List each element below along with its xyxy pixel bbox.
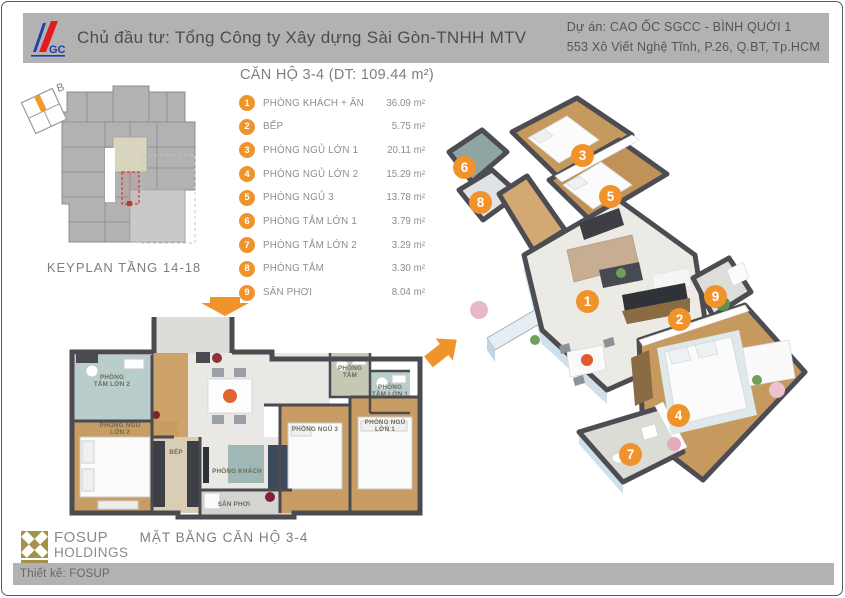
header-bar: GC Chủ đầu tư: Tổng Công ty Xây dựng Sài… bbox=[23, 13, 829, 63]
legend-number-badge: 2 bbox=[239, 119, 255, 135]
legend-room-area: 3.30 m² bbox=[392, 263, 425, 274]
room-label: PHÒNG TẮM bbox=[338, 365, 362, 379]
legend-number-badge: 1 bbox=[239, 95, 255, 111]
legend-room-area: 36.09 m² bbox=[386, 98, 425, 109]
marker-bathroom1: 6 bbox=[453, 156, 476, 179]
unit-title: CĂN HỘ 3-4 (DT: 109.44 m²) bbox=[230, 67, 444, 83]
legend-item: 3PHÒNG NGỦ LỚN 120.11 m² bbox=[239, 142, 425, 158]
fosup-holdings: HOLDINGS bbox=[54, 545, 129, 560]
legend-room-name: PHÒNG NGỦ 3 bbox=[263, 192, 386, 203]
room-label: PHÒNG TẮM LỚN 2 bbox=[94, 374, 130, 388]
marker-bedroom3: 5 bbox=[599, 185, 622, 208]
legend-room-name: BẾP bbox=[263, 121, 392, 132]
footer-bar: Thiết kế: FOSUP bbox=[13, 563, 834, 585]
legend-room-area: 5.75 m² bbox=[392, 121, 425, 132]
entrance-arrow-icon bbox=[201, 297, 249, 316]
keyplan-floor-diagram: B bbox=[17, 82, 227, 257]
marker-bathroom3: 8 bbox=[469, 191, 492, 214]
room-label: PHÒNG KHÁCH bbox=[212, 468, 262, 475]
room-label: PHÒNG TẮM LỚN 1 bbox=[372, 384, 408, 398]
legend-number-badge: 3 bbox=[239, 142, 255, 158]
legend-number-badge: 7 bbox=[239, 237, 255, 253]
fosup-logo-icon bbox=[20, 530, 50, 566]
north-label: B bbox=[55, 82, 66, 95]
room-label: PHÒNG NGỦ LỚN 1 bbox=[365, 419, 406, 433]
legend-item: 1PHÒNG KHÁCH + ĂN36.09 m² bbox=[239, 95, 425, 111]
legend-room-name: PHÒNG NGỦ LỚN 1 bbox=[263, 145, 387, 156]
legend-room-name: PHÒNG KHÁCH + ĂN bbox=[263, 98, 386, 109]
floorplan-2d-caption: MẶT BẰNG CĂN HỘ 3-4 bbox=[124, 530, 324, 545]
floorplan-2d: PHÒNG TẮM LỚN 2 PHÒNG NGỦ LỚN 2 BẾP PHÒN… bbox=[32, 295, 437, 533]
marker-kitchen: 2 bbox=[668, 308, 691, 331]
design-credit: Thiết kế: FOSUP bbox=[20, 568, 110, 580]
room-legend: 1PHÒNG KHÁCH + ĂN36.09 m² 2BẾP5.75 m² 3P… bbox=[239, 95, 425, 308]
legend-number-badge: 6 bbox=[239, 213, 255, 229]
room-label: PHÒNG NGỦ 3 bbox=[292, 426, 338, 433]
legend-room-area: 3.29 m² bbox=[392, 240, 425, 251]
legend-number-badge: 8 bbox=[239, 261, 255, 277]
legend-room-name: PHÒNG NGỦ LỚN 2 bbox=[263, 169, 386, 180]
brochure-page: GC Chủ đầu tư: Tổng Công ty Xây dựng Sài… bbox=[1, 1, 843, 596]
project-address: 553 Xô Viết Nghệ Tĩnh, P.26, Q.BT, Tp.HC… bbox=[567, 37, 820, 57]
marker-bathroom2: 7 bbox=[619, 443, 642, 466]
legend-number-badge: 5 bbox=[239, 190, 255, 206]
legend-item: 8PHÒNG TẮM3.30 m² bbox=[239, 261, 425, 277]
legend-room-name: PHÒNG TẮM bbox=[263, 263, 392, 274]
developer-text: Chủ đầu tư: Tổng Công ty Xây dựng Sài Gò… bbox=[77, 13, 526, 63]
legend-item: 6PHÒNG TẮM LỚN 13.79 m² bbox=[239, 213, 425, 229]
legend-item: 4PHÒNG NGỦ LỚN 215.29 m² bbox=[239, 166, 425, 182]
room-label: BẾP bbox=[169, 449, 183, 456]
legend-room-name: PHÒNG TẮM LỚN 2 bbox=[263, 240, 392, 251]
legend-item: 5PHÒNG NGỦ 313.78 m² bbox=[239, 190, 425, 206]
floorplan-2d-drawing bbox=[32, 295, 437, 533]
legend-item: 2BẾP5.75 m² bbox=[239, 119, 425, 135]
project-info: Dự án: CAO ỐC SGCC - BÌNH QUỚI 1 553 Xô … bbox=[567, 17, 820, 57]
legend-room-area: 20.11 m² bbox=[387, 145, 425, 156]
legend-item: 7PHÒNG TẮM LỚN 23.29 m² bbox=[239, 237, 425, 253]
north-indicator-icon: B bbox=[21, 82, 66, 134]
legend-room-area: 3.79 m² bbox=[392, 216, 425, 227]
keyplan-caption: KEYPLAN TẦNG 14-18 bbox=[24, 260, 224, 275]
legend-room-area: 15.29 m² bbox=[386, 169, 425, 180]
room-label: SÂN PHƠI bbox=[218, 501, 251, 508]
marker-balcony: 9 bbox=[704, 285, 727, 308]
fosup-name: FOSUP bbox=[54, 530, 129, 545]
sgcc-logo-icon: GC bbox=[26, 18, 70, 62]
marker-bedroom2: 4 bbox=[667, 404, 690, 427]
project-name: Dự án: CAO ỐC SGCC - BÌNH QUỚI 1 bbox=[567, 17, 820, 37]
fosup-logo-text: FOSUP HOLDINGS bbox=[54, 530, 129, 560]
keyplan-unit-highlight bbox=[122, 172, 139, 204]
legend-number-badge: 4 bbox=[239, 166, 255, 182]
apartment-3d-view: 1 2 3 4 5 6 7 8 9 bbox=[427, 90, 842, 522]
marker-bedroom1: 3 bbox=[571, 144, 594, 167]
legend-room-area: 13.78 m² bbox=[386, 192, 425, 203]
legend-room-name: PHÒNG TẮM LỚN 1 bbox=[263, 216, 392, 227]
sgcc-logo-text: GC bbox=[49, 44, 66, 56]
marker-living: 1 bbox=[576, 290, 599, 313]
room-label: PHÒNG NGỦ LỚN 2 bbox=[100, 422, 141, 436]
